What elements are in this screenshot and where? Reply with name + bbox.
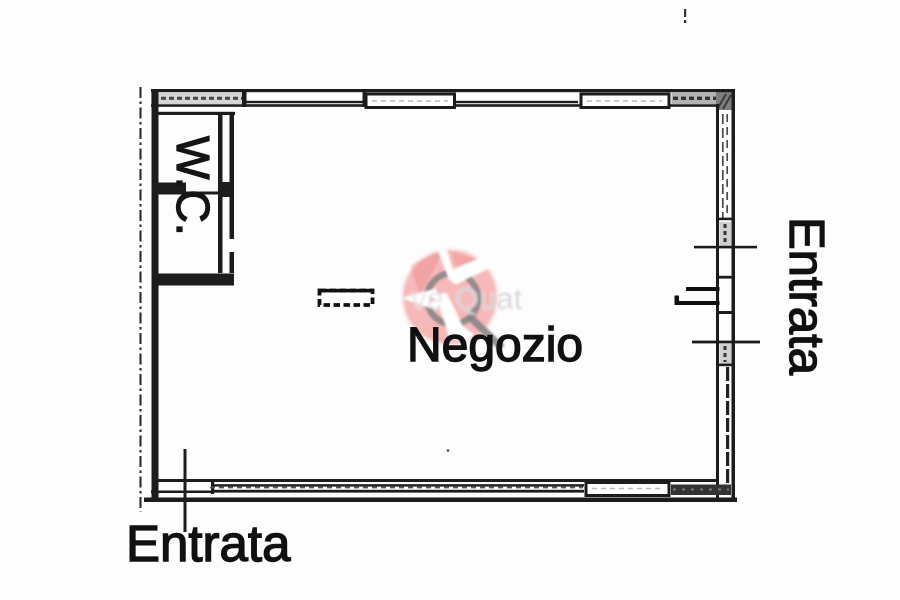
svg-text:ve: ve: [411, 281, 444, 316]
svg-text:W.C.: W.C.: [167, 136, 219, 236]
svg-text:Quat: Quat: [455, 281, 523, 316]
svg-text:Negozio: Negozio: [407, 319, 583, 372]
svg-text:Entrata: Entrata: [779, 217, 833, 376]
svg-text:Entrata: Entrata: [126, 515, 291, 572]
